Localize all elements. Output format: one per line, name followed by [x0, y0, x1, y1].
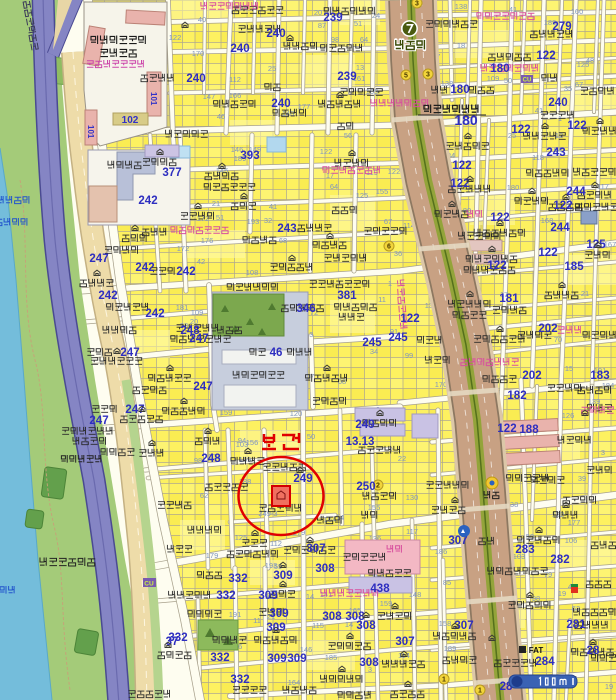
svg-text:186: 186 — [435, 547, 448, 556]
svg-text:117: 117 — [406, 527, 418, 536]
svg-text:183: 183 — [590, 370, 609, 382]
svg-text:5: 5 — [404, 73, 408, 80]
svg-text:3: 3 — [415, 1, 419, 8]
svg-text:22: 22 — [398, 454, 406, 463]
svg-text:2: 2 — [376, 483, 380, 490]
svg-text:281: 281 — [566, 619, 586, 631]
svg-text:180: 180 — [490, 63, 509, 75]
svg-text:122: 122 — [553, 200, 572, 212]
svg-text:1: 1 — [442, 677, 446, 684]
svg-text:181: 181 — [499, 293, 519, 305]
svg-text:1: 1 — [388, 279, 392, 288]
svg-text:164: 164 — [288, 678, 301, 687]
svg-text:159: 159 — [380, 599, 393, 608]
svg-text:193: 193 — [265, 561, 278, 570]
svg-text:108: 108 — [246, 268, 259, 277]
svg-text:46: 46 — [270, 347, 283, 359]
svg-text:243: 243 — [546, 147, 565, 159]
svg-text:180: 180 — [507, 183, 520, 192]
svg-text:114: 114 — [398, 651, 410, 660]
svg-text:147: 147 — [203, 92, 216, 101]
svg-text:307: 307 — [454, 620, 473, 632]
svg-text:51: 51 — [216, 213, 224, 222]
svg-text:191: 191 — [229, 610, 242, 619]
svg-text:247: 247 — [89, 253, 108, 265]
svg-text:20: 20 — [314, 8, 322, 17]
svg-text:193: 193 — [247, 217, 260, 226]
svg-text:245: 245 — [388, 332, 408, 344]
svg-text:309: 309 — [273, 570, 292, 582]
svg-text:112: 112 — [270, 539, 282, 548]
svg-text:180: 180 — [450, 84, 469, 96]
svg-text:184: 184 — [602, 381, 615, 390]
svg-text:202: 202 — [538, 323, 557, 335]
svg-text:181: 181 — [176, 303, 189, 312]
svg-text:122: 122 — [490, 212, 509, 224]
svg-text:170: 170 — [192, 49, 205, 58]
svg-text:155: 155 — [368, 503, 381, 512]
svg-text:117: 117 — [597, 182, 609, 191]
svg-text:332: 332 — [228, 573, 247, 585]
svg-text:332: 332 — [216, 590, 235, 602]
svg-text:284: 284 — [535, 656, 555, 668]
svg-text:112: 112 — [229, 75, 241, 84]
svg-text:239: 239 — [337, 71, 356, 83]
svg-text:24: 24 — [372, 11, 380, 20]
svg-text:122: 122 — [169, 33, 182, 42]
svg-text:67: 67 — [384, 217, 392, 226]
svg-text:185: 185 — [564, 261, 584, 273]
svg-text:239: 239 — [323, 12, 342, 24]
svg-text:118: 118 — [532, 153, 544, 162]
svg-text:28: 28 — [587, 645, 600, 657]
svg-text:125: 125 — [235, 533, 248, 542]
svg-text:18: 18 — [457, 41, 465, 50]
svg-text:377: 377 — [162, 167, 181, 179]
svg-text:242: 242 — [145, 308, 164, 320]
svg-text:102: 102 — [122, 115, 139, 126]
svg-text:13.13: 13.13 — [346, 436, 375, 448]
svg-text:19: 19 — [605, 682, 613, 691]
svg-text:13: 13 — [356, 63, 364, 72]
svg-text:62: 62 — [200, 491, 208, 500]
svg-text:70: 70 — [554, 335, 562, 344]
svg-text:172: 172 — [177, 244, 190, 253]
svg-text:35: 35 — [564, 84, 572, 93]
svg-text:122: 122 — [320, 147, 333, 156]
svg-text:109: 109 — [191, 308, 204, 317]
svg-text:3: 3 — [426, 72, 430, 79]
svg-text:138: 138 — [455, 2, 468, 11]
svg-text:240: 240 — [548, 97, 567, 109]
svg-text:283: 283 — [515, 544, 534, 556]
svg-text:50: 50 — [504, 76, 512, 85]
svg-text:51: 51 — [354, 19, 362, 28]
svg-text:240: 240 — [186, 73, 205, 85]
svg-text:122: 122 — [487, 260, 506, 272]
svg-text:244: 244 — [550, 222, 570, 234]
svg-text:332: 332 — [210, 652, 229, 664]
svg-text:FAT: FAT — [529, 646, 544, 655]
svg-text:21: 21 — [581, 289, 589, 298]
svg-text:19: 19 — [558, 589, 566, 598]
svg-text:180: 180 — [454, 112, 478, 128]
svg-text:36: 36 — [394, 249, 402, 258]
svg-text:99: 99 — [405, 351, 413, 360]
svg-text:240: 240 — [266, 28, 285, 40]
svg-text:308: 308 — [315, 563, 335, 575]
svg-text:242: 242 — [176, 266, 195, 278]
svg-text:160: 160 — [571, 7, 584, 16]
svg-text:309: 309 — [258, 590, 277, 602]
svg-text:309: 309 — [267, 653, 286, 665]
svg-text:189: 189 — [444, 644, 457, 653]
svg-text:155: 155 — [376, 187, 389, 196]
svg-text:41: 41 — [269, 202, 277, 211]
svg-text:249: 249 — [355, 419, 374, 431]
svg-text:CU: CU — [144, 581, 154, 588]
svg-text:308: 308 — [322, 611, 342, 623]
svg-text:381: 381 — [337, 290, 357, 302]
svg-text:250: 250 — [356, 481, 375, 493]
svg-text:126: 126 — [562, 411, 575, 420]
svg-text:46: 46 — [217, 112, 225, 121]
svg-text:307: 307 — [306, 543, 325, 555]
svg-text:56: 56 — [344, 131, 352, 140]
svg-text:14: 14 — [336, 513, 344, 522]
svg-text:25: 25 — [268, 64, 276, 73]
svg-text:240: 240 — [230, 43, 249, 55]
svg-text:32: 32 — [264, 216, 272, 225]
svg-text:185: 185 — [325, 653, 338, 662]
svg-text:282: 282 — [550, 554, 569, 566]
svg-text:122: 122 — [536, 50, 555, 62]
svg-text:103: 103 — [236, 440, 249, 449]
svg-text:CU: CU — [523, 78, 532, 84]
svg-text:6: 6 — [387, 244, 391, 251]
svg-text:308: 308 — [356, 620, 376, 632]
svg-text:243: 243 — [277, 223, 296, 235]
svg-text:308: 308 — [359, 657, 379, 669]
svg-text:21: 21 — [212, 199, 220, 208]
svg-text:3: 3 — [601, 448, 605, 457]
svg-text:307: 307 — [395, 636, 414, 648]
svg-text:182: 182 — [507, 390, 526, 402]
svg-text:247: 247 — [193, 381, 212, 393]
svg-text:159: 159 — [239, 455, 252, 464]
svg-text:332: 332 — [230, 674, 249, 686]
svg-text:11: 11 — [253, 616, 261, 625]
svg-text:101: 101 — [149, 92, 158, 106]
svg-text:242: 242 — [138, 195, 157, 207]
svg-text:48: 48 — [586, 56, 594, 65]
svg-text:242: 242 — [98, 290, 117, 302]
svg-text:42: 42 — [197, 257, 205, 266]
svg-text:64: 64 — [360, 35, 368, 44]
svg-text:188: 188 — [519, 424, 539, 436]
svg-text:248: 248 — [201, 453, 221, 465]
svg-text:346: 346 — [296, 303, 315, 315]
svg-text:41: 41 — [535, 106, 543, 115]
svg-text:247: 247 — [120, 347, 139, 359]
svg-text:279: 279 — [552, 21, 571, 33]
svg-text:309: 309 — [287, 653, 306, 665]
svg-text:15: 15 — [565, 364, 573, 373]
svg-text:177: 177 — [568, 518, 581, 527]
svg-text:202: 202 — [522, 370, 541, 382]
svg-text:438: 438 — [370, 583, 390, 595]
svg-text:249: 249 — [293, 473, 312, 485]
svg-text:309: 309 — [269, 608, 288, 620]
svg-text:125: 125 — [356, 191, 369, 200]
svg-text:130: 130 — [406, 493, 419, 502]
svg-text:106: 106 — [565, 536, 578, 545]
svg-text:166: 166 — [229, 91, 242, 100]
svg-text:1: 1 — [478, 688, 482, 695]
svg-text:122: 122 — [452, 160, 471, 172]
svg-text:40: 40 — [198, 15, 206, 24]
svg-text:122: 122 — [497, 423, 516, 435]
svg-text:98: 98 — [331, 35, 339, 44]
svg-text:68: 68 — [279, 236, 287, 245]
svg-text:122: 122 — [538, 247, 557, 259]
svg-text:122: 122 — [388, 167, 401, 176]
svg-text:101: 101 — [86, 125, 95, 139]
svg-text:176: 176 — [201, 236, 214, 245]
svg-text:109: 109 — [487, 74, 500, 83]
svg-text:248: 248 — [180, 325, 200, 337]
svg-text:85: 85 — [443, 578, 451, 587]
svg-text:122: 122 — [567, 120, 586, 132]
svg-text:122: 122 — [400, 313, 419, 325]
svg-text:122: 122 — [511, 124, 530, 136]
svg-text:245: 245 — [362, 337, 382, 349]
svg-text:242: 242 — [135, 262, 154, 274]
svg-text:50: 50 — [307, 432, 315, 441]
svg-text:14: 14 — [306, 592, 314, 601]
svg-text:393: 393 — [240, 150, 259, 162]
svg-text:240: 240 — [271, 98, 290, 110]
svg-text:11: 11 — [378, 295, 386, 304]
svg-text:158: 158 — [439, 619, 452, 628]
svg-text:179: 179 — [206, 551, 219, 560]
svg-text:247: 247 — [89, 415, 108, 427]
svg-text:39: 39 — [578, 474, 586, 483]
svg-text:64: 64 — [330, 182, 338, 191]
